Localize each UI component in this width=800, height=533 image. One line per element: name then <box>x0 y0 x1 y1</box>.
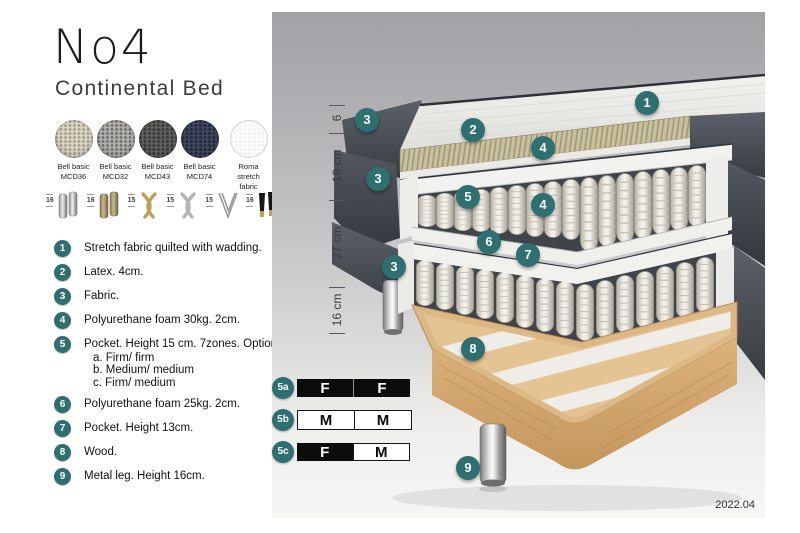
leg-options-row: 16 16 15 15 <box>46 190 283 220</box>
part-number-badge: 3 <box>54 288 71 305</box>
part-text: Latex. 4cm. <box>84 264 143 279</box>
fabric-swatch-item: Bell basicMCD43 <box>137 120 178 182</box>
firmness-badge: 5c <box>272 441 294 463</box>
part-number-badge: 6 <box>54 396 71 413</box>
fabric-swatch-circle <box>55 120 93 158</box>
part-item: 3 Fabric. <box>54 288 280 305</box>
part-text: Pocket. Height 13cm. <box>84 420 193 435</box>
firmness-badge: 5b <box>272 409 294 431</box>
leg-chrome-cylinder-icon <box>56 190 82 220</box>
part-number-badge: 5 <box>54 336 71 353</box>
firmness-cell: F <box>297 443 353 461</box>
page-subtitle: Continental Bed <box>55 77 224 101</box>
leg-option: 15 <box>128 190 162 220</box>
callout-3: 3 <box>366 167 390 191</box>
fabric-swatch-circle <box>139 120 177 158</box>
callout-3: 3 <box>355 108 379 132</box>
metal-leg-front <box>479 424 507 492</box>
fabric-swatch-circle <box>181 120 219 158</box>
part-number-badge: 8 <box>54 444 71 461</box>
callout-8: 8 <box>461 337 485 361</box>
callout-7: 7 <box>516 243 540 267</box>
measurement-label: 6 <box>330 96 346 140</box>
firmness-row-5c: 5c F M <box>272 441 410 463</box>
leg-option: 16 <box>87 190 123 220</box>
firmness-option-box: F M <box>297 443 410 461</box>
part-item: 7 Pocket. Height 13cm. <box>54 420 280 437</box>
fabric-swatch-circle <box>230 120 268 158</box>
callout-9: 9 <box>456 456 480 480</box>
callout-4: 4 <box>531 136 555 160</box>
callout-6: 6 <box>477 230 501 254</box>
measurement-label: 19 cm <box>330 144 346 188</box>
leg-brass-cylinder-icon <box>97 190 123 220</box>
fabric-swatch-label: Bell basicMCD74 <box>179 162 220 182</box>
part-text: Polyurethane foam 25kg. 2cm. <box>84 396 240 411</box>
leg-silver-cross-icon <box>176 190 200 220</box>
leg-height-label: 16 <box>87 194 95 207</box>
part-text: Polyurethane foam 30kg. 2cm. <box>84 312 240 327</box>
fabric-swatch-label: Bell basicMCD36 <box>53 162 94 182</box>
firmness-cell: M <box>355 411 411 429</box>
callout-5: 5 <box>456 185 480 209</box>
fabric-swatch-item: Bell basicMCD32 <box>95 120 136 182</box>
firmness-row-5b: 5b M M <box>272 409 412 431</box>
leg-height-label: 15 <box>128 194 136 207</box>
part-item: 4 Polyurethane foam 30kg. 2cm. <box>54 312 280 329</box>
diagram-panel: 6 19 cm 27 cm 16 cm 1 2 3 3 3 4 4 5 6 7 … <box>272 12 765 518</box>
firmness-cell: M <box>353 443 411 461</box>
fabric-swatch-item: Bell basicMCD74 <box>179 120 220 182</box>
part-number-badge: 2 <box>54 264 71 281</box>
leg-option: 16 <box>46 190 82 220</box>
fabric-swatch-label: Bell basicMCD43 <box>137 162 178 182</box>
part-item: 1 Stretch fabric quilted with wadding. <box>54 240 280 257</box>
callout-3: 3 <box>382 255 406 279</box>
part-item: 8 Wood. <box>54 444 280 461</box>
leg-height-label: 15 <box>205 194 213 207</box>
firmness-option-box: M M <box>297 410 412 430</box>
fabric-swatch-item: Bell basicMCD36 <box>53 120 94 182</box>
parts-list: 1 Stretch fabric quilted with wadding. 2… <box>54 240 280 492</box>
leg-height-label: 15 <box>166 194 174 207</box>
callout-1: 1 <box>635 91 659 115</box>
page-title: No4 <box>53 20 153 75</box>
firmness-cell: M <box>298 411 355 429</box>
leg-gold-cross-icon <box>137 190 161 220</box>
leg-height-label: 16 <box>46 194 54 207</box>
ruler-tick <box>329 200 345 201</box>
leg-height-label: 16 <box>246 194 254 207</box>
firmness-cell: F <box>353 379 410 397</box>
part-text: Stretch fabric quilted with wadding. <box>84 240 262 255</box>
fabric-swatch-circle <box>97 120 135 158</box>
fabric-swatch-label: Romastretch fabric <box>228 162 269 191</box>
callout-4: 4 <box>531 193 555 217</box>
part-item: 6 Polyurethane foam 25kg. 2cm. <box>54 396 280 413</box>
firmness-cell: F <box>297 379 353 397</box>
fabric-swatch-label: Bell basicMCD32 <box>95 162 136 182</box>
part-number-badge: 4 <box>54 312 71 329</box>
part-item: 5 Pocket. Height 15 cm. 7zones. Option: … <box>54 336 280 389</box>
firmness-row-5a: 5a F F <box>272 377 410 399</box>
part-text: Fabric. <box>84 288 119 303</box>
part-number-badge: 9 <box>54 468 71 485</box>
part-item: 9 Metal leg. Height 16cm. <box>54 468 280 485</box>
part-number-badge: 7 <box>54 420 71 437</box>
fabric-swatch-row: Bell basicMCD36 Bell basicMCD32 Bell bas… <box>53 120 270 191</box>
part-text: Wood. <box>84 444 117 459</box>
part-text: Pocket. Height 15 cm. 7zones. Option: a.… <box>84 336 280 389</box>
part-item: 2 Latex. 4cm. <box>54 264 280 281</box>
fabric-swatch-item: Romastretch fabric <box>228 120 269 191</box>
version-label: 2022.04 <box>715 499 755 511</box>
part-text: Metal leg. Height 16cm. <box>84 468 205 483</box>
part-number-badge: 1 <box>54 240 71 257</box>
measurement-label: 16 cm <box>330 288 346 332</box>
leg-hairpin-icon <box>215 190 241 220</box>
measurement-label: 27 cm <box>330 221 346 265</box>
callout-2: 2 <box>461 118 485 142</box>
ruler-tick <box>329 333 345 334</box>
firmness-badge: 5a <box>272 377 294 399</box>
leg-option: 15 <box>205 190 241 220</box>
part-options: a. Firm/ firm b. Medium/ medium c. Firm/… <box>93 352 280 390</box>
firmness-option-box: F F <box>297 379 410 397</box>
leg-option: 15 <box>166 190 200 220</box>
